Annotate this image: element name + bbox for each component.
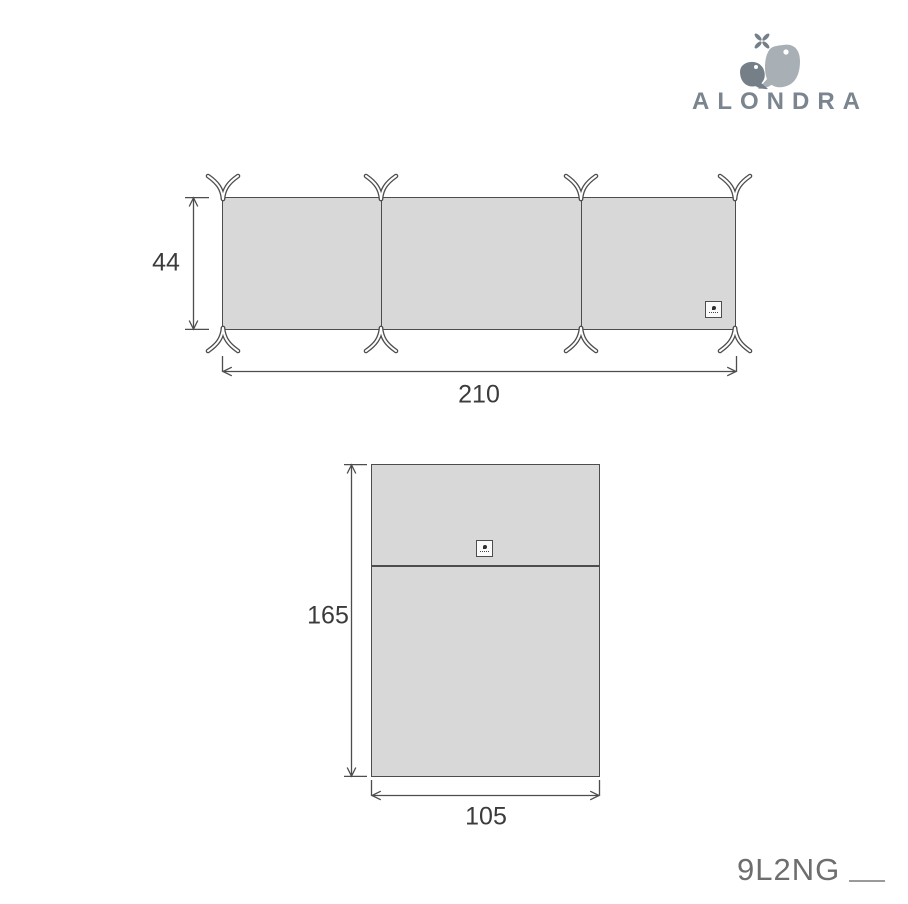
bumper-width-dimension — [223, 356, 737, 376]
bumper-width-label: 210 — [458, 381, 500, 410]
duvet-width-dimension — [372, 780, 600, 800]
product-code-underline — [849, 880, 885, 882]
bumper-height-dimension — [185, 197, 209, 330]
tie-ribbons-bottom — [208, 328, 750, 351]
duvet-height-label: 165 — [307, 602, 349, 631]
product-code: 9L2NG — [737, 852, 840, 888]
tie-ribbons-top — [208, 176, 750, 199]
duvet-width-label: 105 — [465, 803, 507, 832]
product-dimension-sheet: ALONDRA — [0, 0, 908, 904]
diagram-linework — [0, 0, 908, 904]
bumper-height-label: 44 — [152, 249, 180, 278]
